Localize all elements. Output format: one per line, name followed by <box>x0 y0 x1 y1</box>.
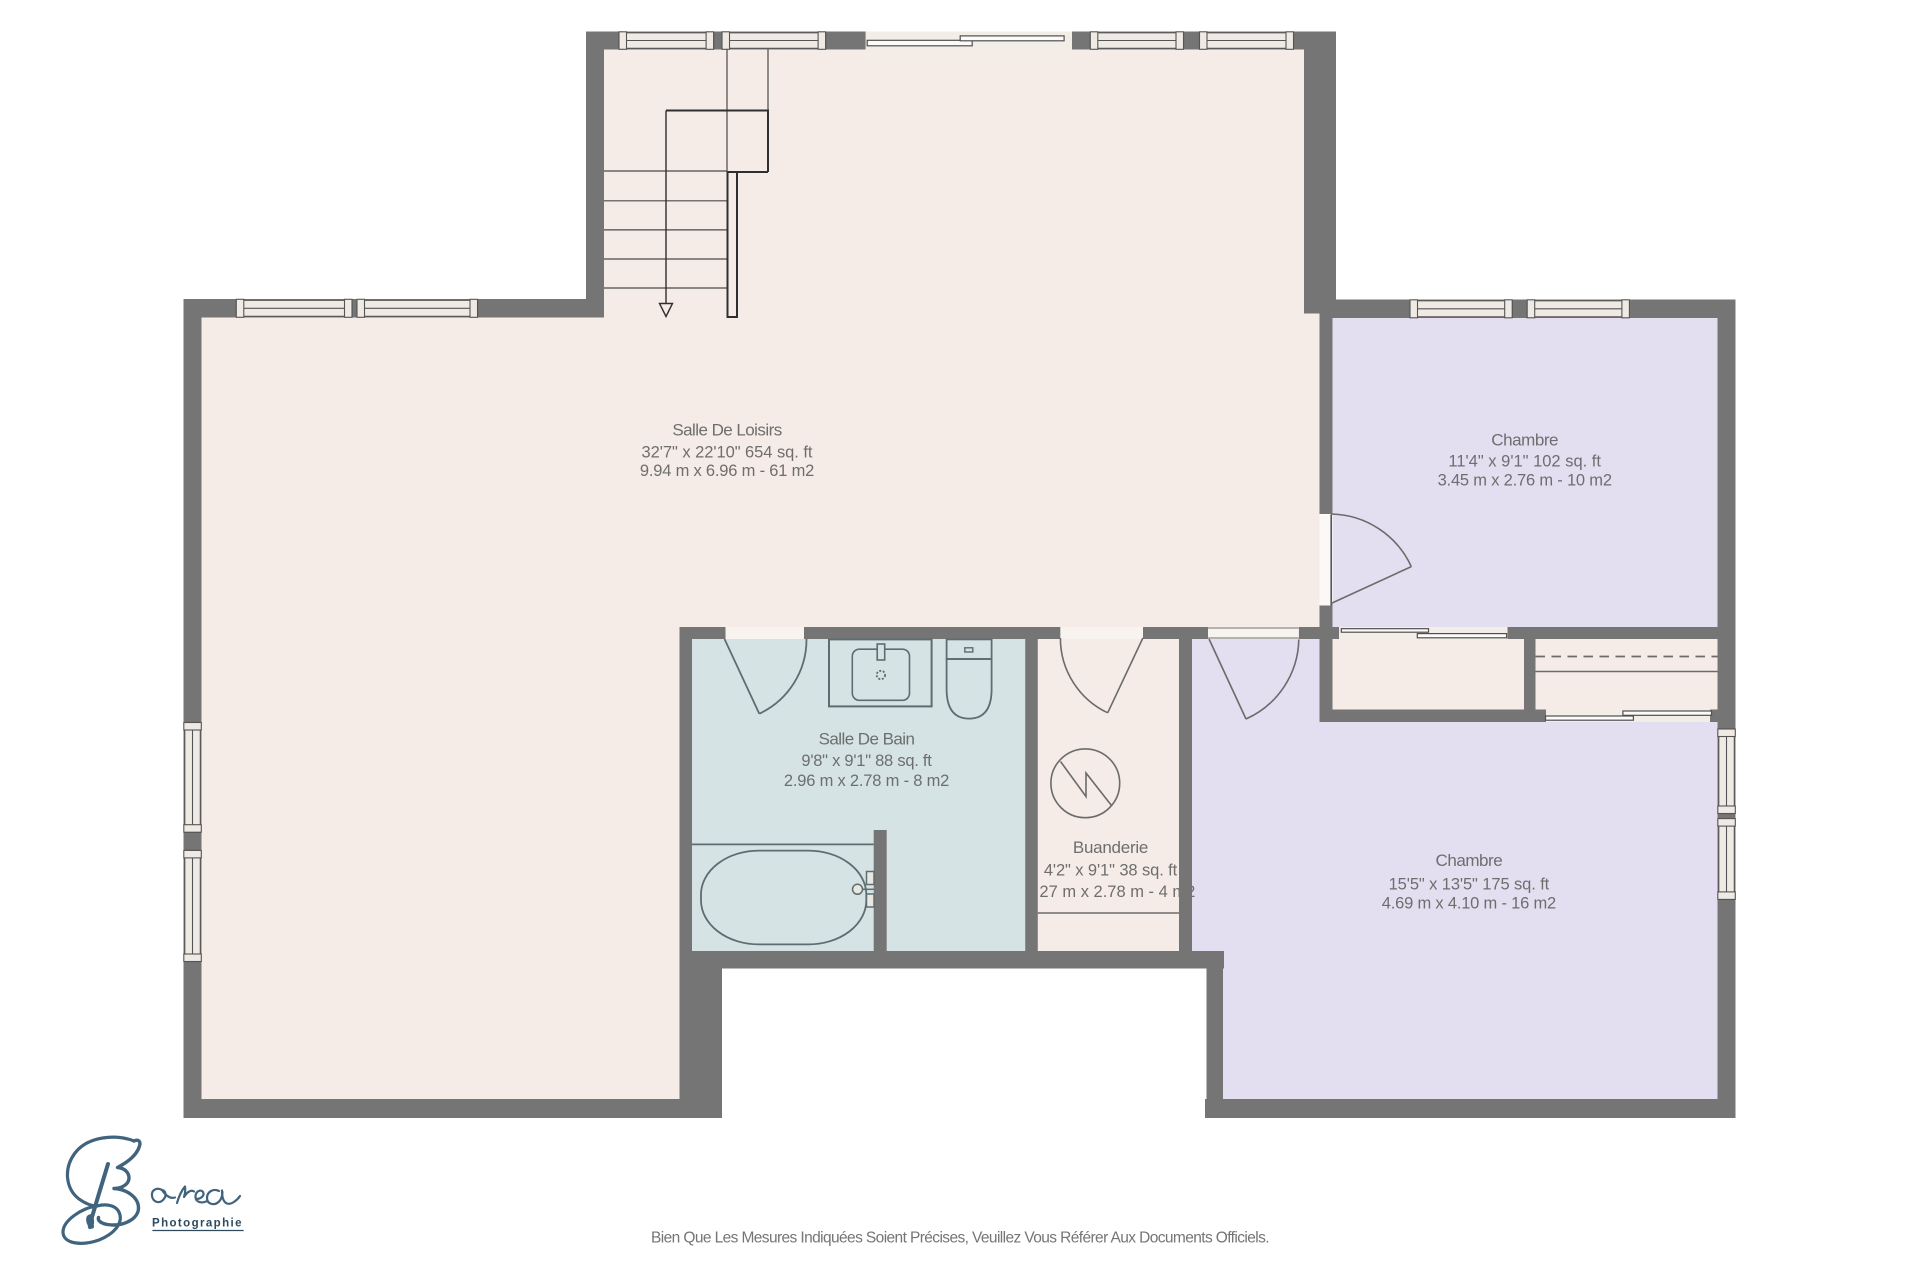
svg-text:Buanderie: Buanderie <box>1073 838 1148 857</box>
svg-text:32'7" x 22'10" 654 sq. ft: 32'7" x 22'10" 654 sq. ft <box>642 444 813 462</box>
svg-text:Chambre: Chambre <box>1491 431 1558 450</box>
svg-text:Salle De Loisirs: Salle De Loisirs <box>672 421 781 440</box>
svg-text:Bien Que Les Mesures Indiquées: Bien Que Les Mesures Indiquées Soient Pr… <box>651 1230 1269 1247</box>
svg-text:1.27 m x 2.78 m - 4 m2: 1.27 m x 2.78 m - 4 m2 <box>1026 883 1196 901</box>
svg-text:Photographie: Photographie <box>152 1218 243 1230</box>
svg-text:Salle De Bain: Salle De Bain <box>819 730 915 749</box>
svg-text:4.69 m x 4.10 m - 16 m2: 4.69 m x 4.10 m - 16 m2 <box>1382 895 1556 913</box>
svg-text:3.45 m x 2.76 m - 10 m2: 3.45 m x 2.76 m - 10 m2 <box>1438 472 1612 490</box>
svg-text:4'2" x 9'1" 38 sq. ft: 4'2" x 9'1" 38 sq. ft <box>1044 862 1178 880</box>
svg-text:2.96 m x 2.78 m - 8 m2: 2.96 m x 2.78 m - 8 m2 <box>784 772 949 790</box>
svg-text:9'8" x 9'1" 88 sq. ft: 9'8" x 9'1" 88 sq. ft <box>801 752 932 770</box>
svg-text:11'4" x 9'1" 102 sq. ft: 11'4" x 9'1" 102 sq. ft <box>1448 453 1601 471</box>
svg-text:Chambre: Chambre <box>1436 851 1503 870</box>
svg-text:15'5" x 13'5" 175 sq. ft: 15'5" x 13'5" 175 sq. ft <box>1389 876 1550 894</box>
svg-text:9.94 m x 6.96 m - 61 m2: 9.94 m x 6.96 m - 61 m2 <box>640 462 814 480</box>
